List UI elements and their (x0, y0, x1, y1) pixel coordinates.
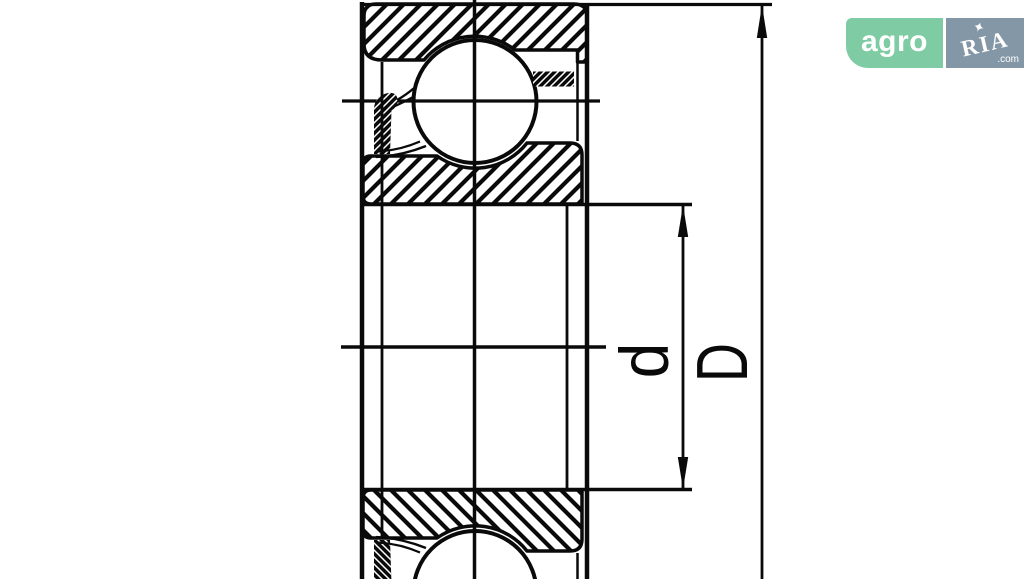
arrow-down-icon (678, 457, 688, 489)
lower-half-section (342, 490, 692, 580)
watermark-logo: agro ✦ RIA .com (846, 18, 1024, 68)
agro-logo-text: agro (861, 27, 928, 57)
bearing-cross-section-svg: d D (0, 0, 1030, 579)
bearing-drawing: d D (0, 0, 1030, 579)
dimension-label-d: d (607, 343, 684, 379)
arrow-up-icon (678, 205, 688, 237)
dimension-D: D (683, 5, 768, 579)
dimension-label-D: D (683, 343, 763, 382)
dot-com-label: .com (997, 55, 1019, 65)
agro-logo-block: agro (846, 18, 943, 68)
dimension-d: d (607, 205, 688, 489)
ria-logo-block: ✦ RIA .com (946, 18, 1024, 68)
product-image: d D agro ✦ RIA .com (0, 0, 1030, 579)
upper-half-section (342, 4, 692, 205)
arrow-up-icon (757, 5, 767, 38)
